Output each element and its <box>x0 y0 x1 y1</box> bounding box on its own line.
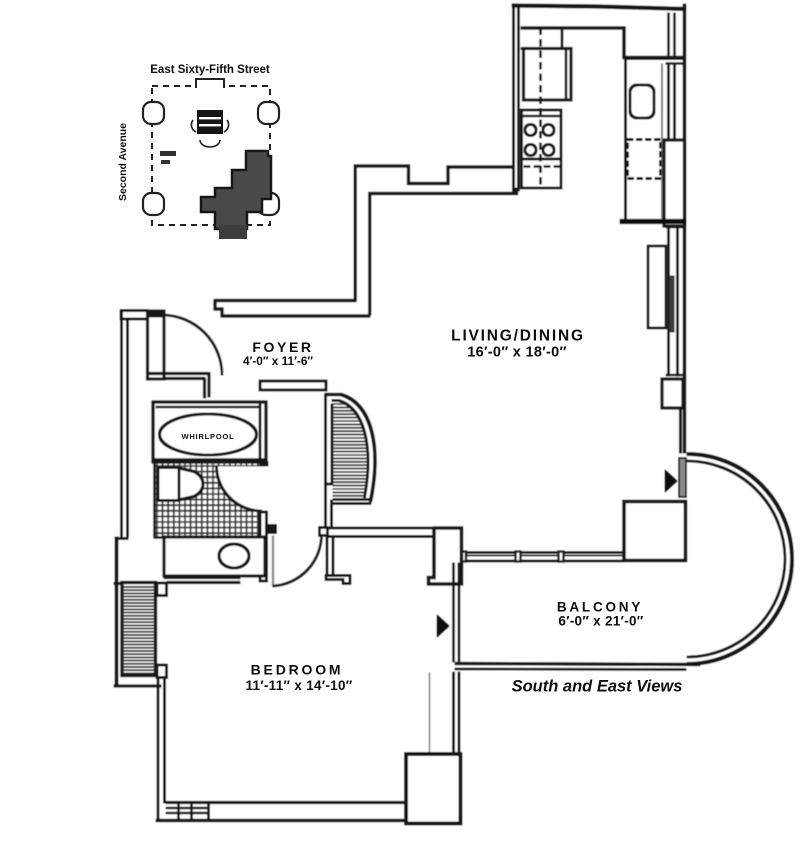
svg-text:16′-0″ x 18′-0″: 16′-0″ x 18′-0″ <box>467 345 567 361</box>
svg-text:WHIRLPOOL: WHIRLPOOL <box>181 432 234 441</box>
svg-text:4′-0″ x 11′-6″: 4′-0″ x 11′-6″ <box>243 354 313 368</box>
svg-text:FOYER: FOYER <box>252 339 313 355</box>
svg-text:South and East Views: South and East Views <box>512 678 683 696</box>
svg-text:BEDROOM: BEDROOM <box>251 662 344 678</box>
svg-text:11′-11″ x 14′-10″: 11′-11″ x 14′-10″ <box>245 678 352 693</box>
svg-text:6′-0″ x 21′-0″: 6′-0″ x 21′-0″ <box>558 614 643 629</box>
svg-text:BALCONY: BALCONY <box>557 600 643 615</box>
svg-text:LIVING/DINING: LIVING/DINING <box>451 328 585 345</box>
svg-text:Second Avenue: Second Avenue <box>117 123 129 201</box>
svg-text:East Sixty-Fifth Street: East Sixty-Fifth Street <box>150 64 270 76</box>
